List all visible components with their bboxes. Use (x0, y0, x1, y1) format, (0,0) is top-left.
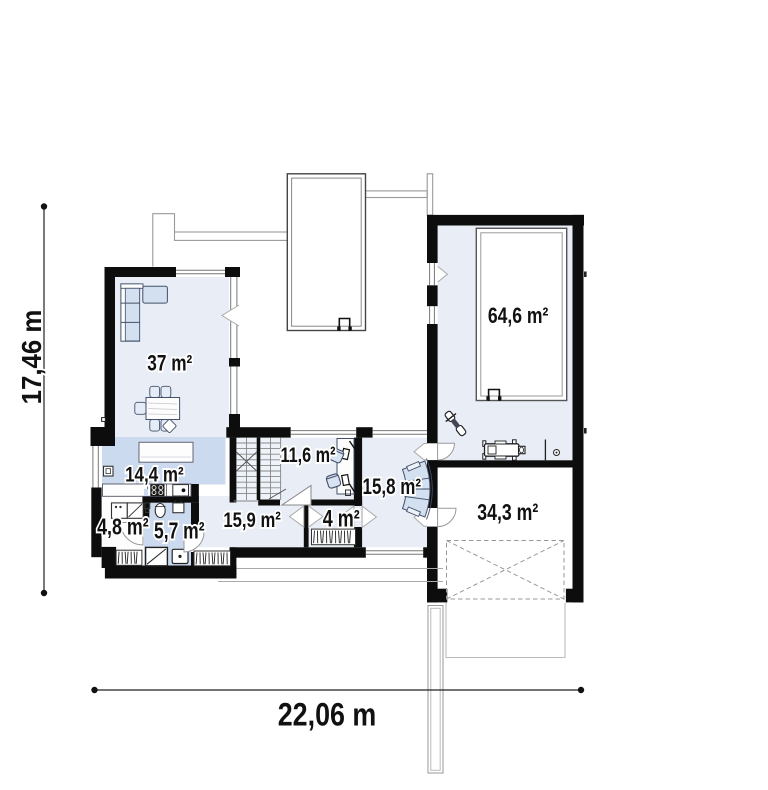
svg-text:34,3 m²: 34,3 m² (477, 499, 538, 525)
svg-text:37 m²: 37 m² (147, 350, 192, 375)
svg-text:22,06 m: 22,06 m (278, 696, 377, 732)
svg-text:15,9 m²: 15,9 m² (223, 508, 281, 532)
svg-text:5,7 m²: 5,7 m² (154, 518, 205, 544)
svg-text:15,8 m²: 15,8 m² (363, 474, 422, 499)
svg-text:11,6 m²: 11,6 m² (281, 443, 336, 467)
svg-text:17,46 m: 17,46 m (16, 310, 47, 405)
svg-text:64,6 m²: 64,6 m² (488, 303, 549, 328)
svg-text:14,4 m²: 14,4 m² (125, 464, 184, 487)
svg-text:4,8 m²: 4,8 m² (97, 514, 149, 540)
svg-text:4 m²: 4 m² (323, 505, 360, 532)
